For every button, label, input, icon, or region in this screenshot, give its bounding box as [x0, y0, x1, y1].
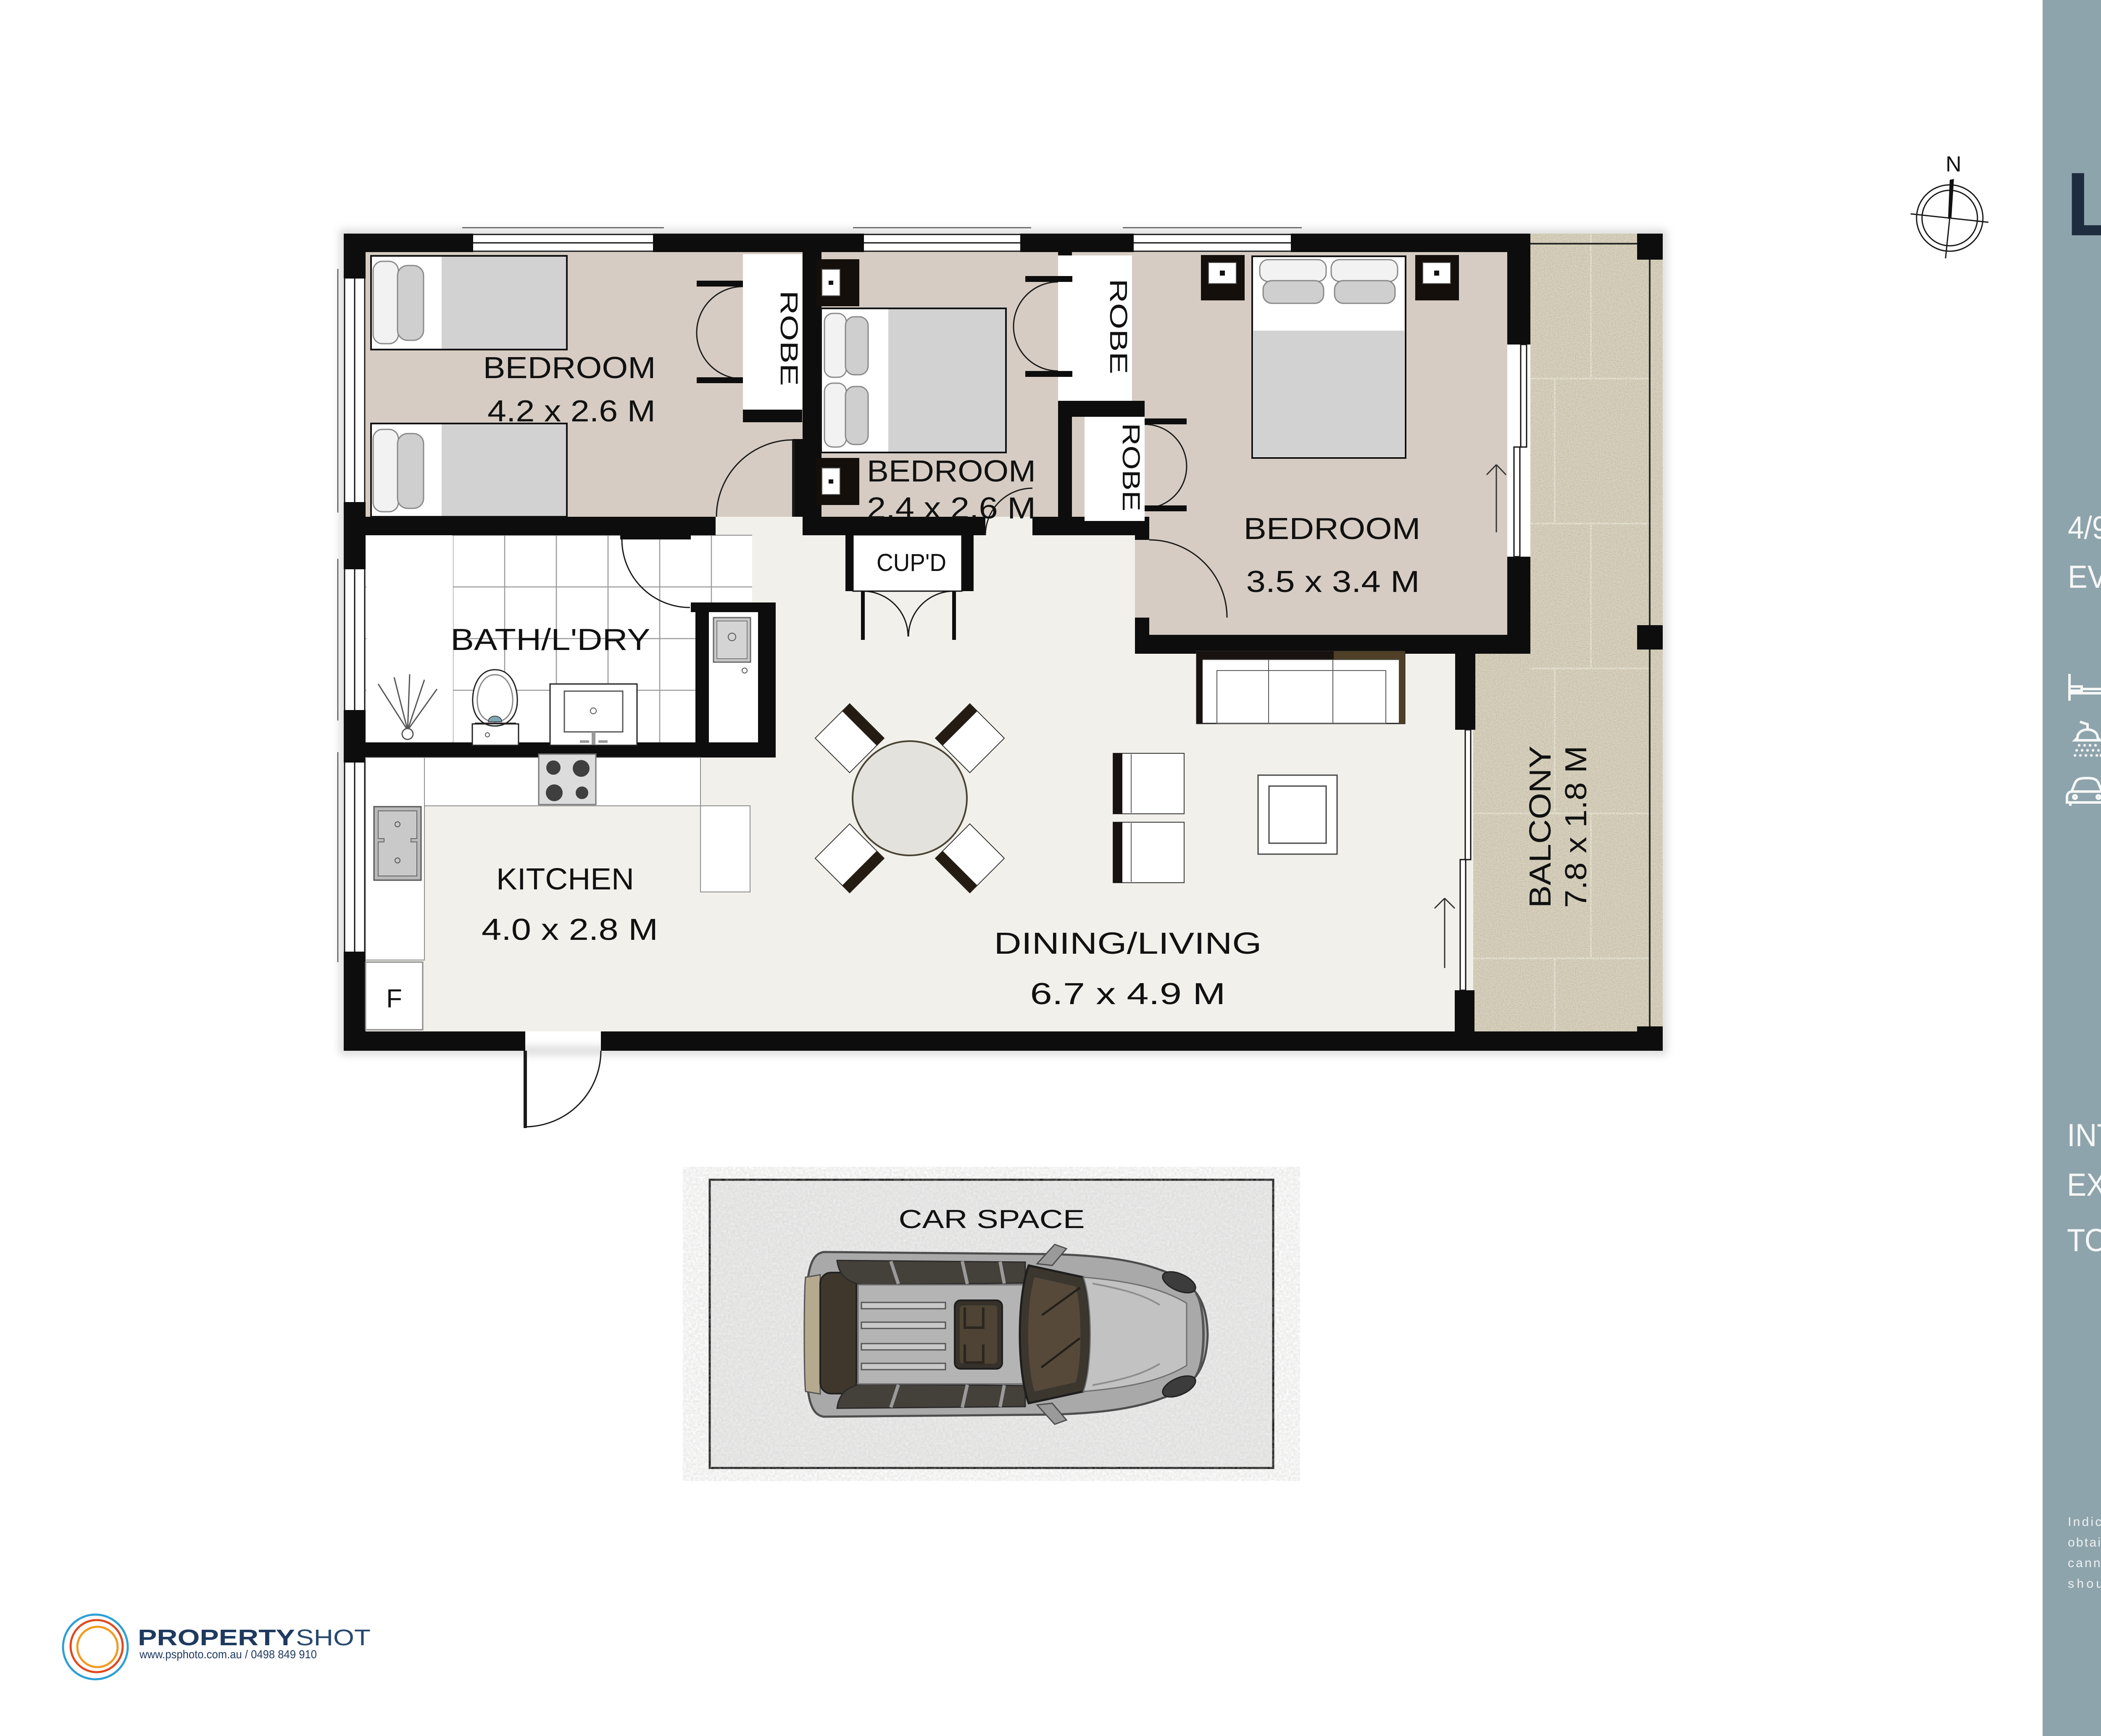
svg-text:7.8 x 1.8 M: 7.8 x 1.8 M [1559, 746, 1593, 908]
svg-text:TOTAL : 107 m2: TOTAL : 107 m2 [2067, 1223, 2101, 1258]
svg-text:EXTERNAL : 13 m2: EXTERNAL : 13 m2 [2067, 1167, 2101, 1203]
svg-text:BEDROOM: BEDROOM [867, 455, 1036, 488]
svg-text:INTERNAL : 94 m2: INTERNAL : 94 m2 [2067, 1118, 2101, 1153]
svg-text:EVANS HEAD: EVANS HEAD [2068, 559, 2101, 595]
svg-text:N: N [1946, 152, 1961, 176]
svg-text:DINING/LIVING: DINING/LIVING [994, 927, 1262, 960]
svg-text:cannot guarantee its accuracy.: cannot guarantee its accuracy. Intereste… [2068, 1556, 2101, 1570]
svg-text:2.4 x 2.6 M: 2.4 x 2.6 M [867, 492, 1036, 525]
svg-text:ROBE: ROBE [1117, 423, 1145, 511]
svg-text:Indicative only. All informat: Indicative only. All information contain… [2068, 1515, 2101, 1529]
svg-text:4.0 x 2.8 M: 4.0 x 2.8 M [482, 913, 658, 947]
svg-text:4/9-11 TERRACE STREET,: 4/9-11 TERRACE STREET, [2068, 510, 2101, 546]
svg-text:CUP'D: CUP'D [877, 549, 946, 576]
svg-text:SHOT: SHOT [296, 1625, 371, 1650]
svg-text:4.2 x 2.6 M: 4.2 x 2.6 M [487, 395, 656, 428]
svg-text:Lifestyle.: Lifestyle. [2066, 153, 2101, 255]
svg-text:ROBE: ROBE [775, 291, 803, 386]
svg-text:3.5 x 3.4 M: 3.5 x 3.4 M [1246, 565, 1420, 599]
svg-text:BEDROOM: BEDROOM [1244, 512, 1421, 546]
svg-text:ROBE: ROBE [1105, 279, 1132, 374]
svg-text:BATH/L'DRY: BATH/L'DRY [451, 623, 650, 657]
svg-text:PROPERTY: PROPERTY [138, 1625, 295, 1650]
svg-text:obtained from sources we belie: obtained from sources we believe to be a… [2068, 1536, 2101, 1549]
svg-text:KITCHEN: KITCHEN [496, 863, 634, 896]
svg-text:www.psphoto.com.au / 0498 849: www.psphoto.com.au / 0498 849 910 [139, 1648, 317, 1661]
svg-text:6.7 x 4.9 M: 6.7 x 4.9 M [1030, 977, 1226, 1011]
svg-text:CAR SPACE: CAR SPACE [899, 1205, 1085, 1234]
svg-text:BALCONY: BALCONY [1524, 746, 1557, 908]
svg-text:F: F [386, 984, 402, 1013]
svg-text:BEDROOM: BEDROOM [483, 351, 656, 385]
